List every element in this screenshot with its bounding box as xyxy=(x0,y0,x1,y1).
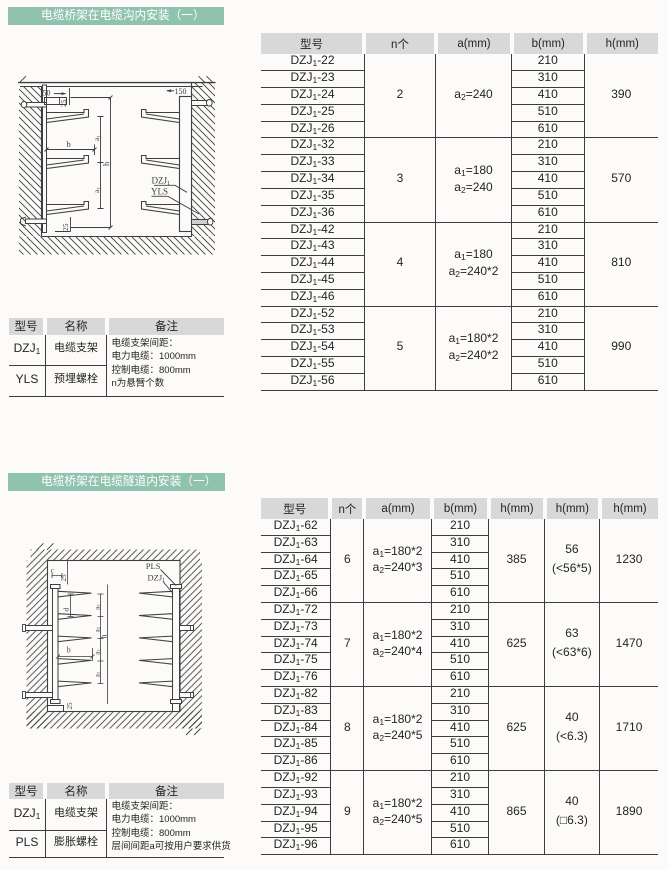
svg-text:YLS: YLS xyxy=(151,187,168,197)
svg-text:25: 25 xyxy=(59,99,68,107)
svg-text:25: 25 xyxy=(61,223,70,231)
svg-text:h: h xyxy=(101,161,111,166)
svg-text:a1: a1 xyxy=(92,135,103,141)
svg-text:a1: a1 xyxy=(92,187,103,193)
svg-text:25: 25 xyxy=(66,702,74,710)
svg-text:h: h xyxy=(100,635,109,639)
svg-text:50: 50 xyxy=(43,89,51,98)
svg-text:DZJ1: DZJ1 xyxy=(148,573,166,584)
svg-text:a2: a2 xyxy=(93,649,102,655)
svg-text:a2: a2 xyxy=(93,626,102,632)
svg-text:d: d xyxy=(62,608,71,612)
svg-text:25: 25 xyxy=(60,574,68,582)
svg-text:a2: a2 xyxy=(93,604,102,610)
svg-text:c: c xyxy=(51,566,55,575)
svg-text:150: 150 xyxy=(175,87,187,96)
svg-text:a2: a2 xyxy=(93,671,102,677)
svg-text:PLS: PLS xyxy=(146,561,161,571)
svg-text:b: b xyxy=(67,139,71,149)
svg-text:b: b xyxy=(67,646,71,655)
